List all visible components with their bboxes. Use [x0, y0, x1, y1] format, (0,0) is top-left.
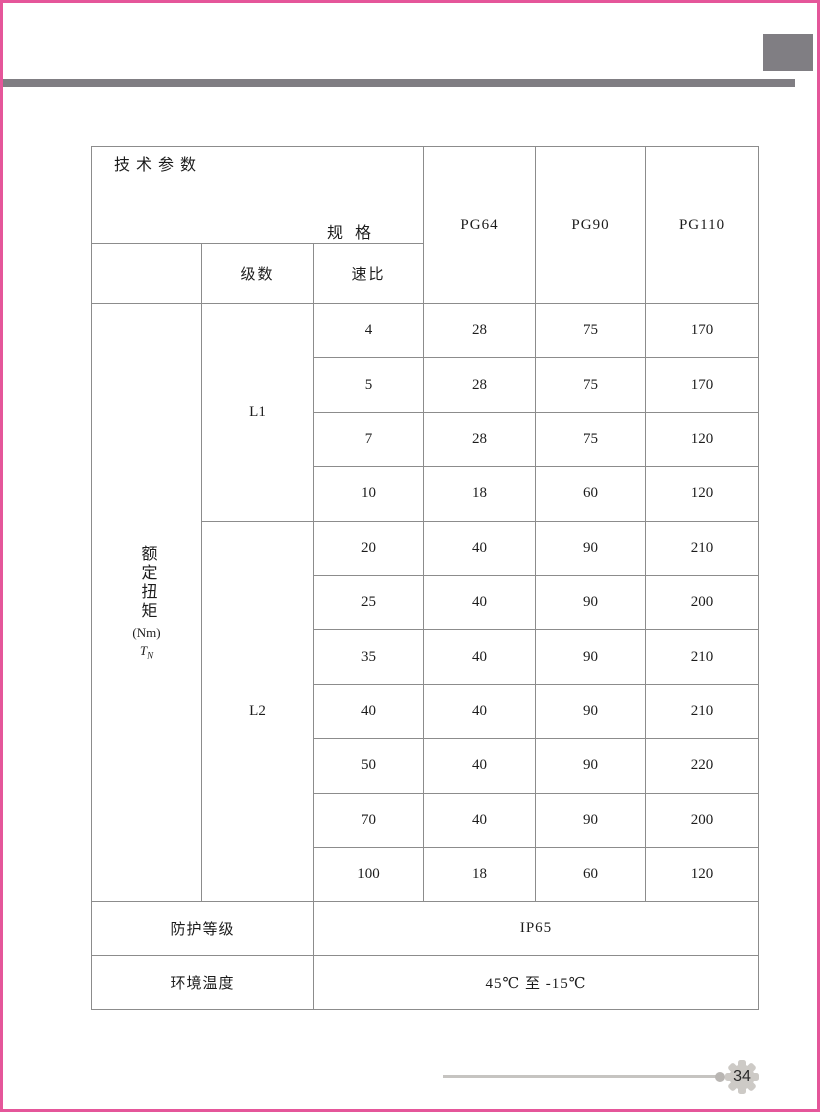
top-accent-square	[763, 34, 813, 71]
ratio-cell: 7	[314, 412, 424, 466]
value-cell: 170	[646, 358, 759, 412]
value-cell: 90	[536, 521, 646, 575]
value-cell: 170	[646, 304, 759, 358]
value-cell: 90	[536, 739, 646, 793]
torque-label-cell: 额定扭矩 (Nm) TN	[92, 304, 202, 902]
footer-rule	[443, 1075, 721, 1078]
value-cell: 90	[536, 575, 646, 629]
value-cell: 90	[536, 630, 646, 684]
ratio-header: 速比	[314, 244, 424, 304]
value-cell: 28	[424, 412, 536, 466]
torque-symbol: TN	[140, 643, 153, 661]
group-label-l2: L2	[202, 521, 314, 902]
value-cell: 120	[646, 467, 759, 521]
params-label: 技术参数	[114, 151, 202, 175]
value-cell: 75	[536, 358, 646, 412]
column-header-pg110: PG110	[646, 147, 759, 304]
footer-dot	[715, 1072, 725, 1082]
torque-unit: (Nm)	[132, 625, 160, 641]
ratio-cell: 4	[314, 304, 424, 358]
corner-header-cell: 规 格 技术参数	[92, 147, 424, 244]
value-cell: 40	[424, 684, 536, 738]
value-cell: 18	[424, 847, 536, 901]
protection-row: 防护等级 IP65	[92, 902, 759, 956]
page-number: 34	[725, 1060, 759, 1094]
value-cell: 200	[646, 793, 759, 847]
torque-name: 额定扭矩	[139, 545, 155, 621]
value-cell: 60	[536, 467, 646, 521]
spec-label: 规 格	[327, 219, 375, 243]
protection-value: IP65	[314, 902, 759, 956]
page-number-badge: 34	[725, 1060, 759, 1094]
value-cell: 210	[646, 630, 759, 684]
value-cell: 200	[646, 575, 759, 629]
ratio-cell: 20	[314, 521, 424, 575]
temperature-label: 环境温度	[92, 956, 314, 1010]
blank-header-cell	[92, 244, 202, 304]
value-cell: 40	[424, 575, 536, 629]
protection-label: 防护等级	[92, 902, 314, 956]
ratio-cell: 40	[314, 684, 424, 738]
value-cell: 75	[536, 412, 646, 466]
ratio-cell: 70	[314, 793, 424, 847]
value-cell: 120	[646, 847, 759, 901]
value-cell: 40	[424, 630, 536, 684]
value-cell: 75	[536, 304, 646, 358]
ratio-cell: 5	[314, 358, 424, 412]
ratio-cell: 35	[314, 630, 424, 684]
group-label-l1: L1	[202, 304, 314, 522]
catalog-page: 规 格 技术参数 PG64 PG90 PG110 级数 速比 额定扭矩	[0, 0, 820, 1112]
value-cell: 90	[536, 793, 646, 847]
value-cell: 40	[424, 739, 536, 793]
table-row: 额定扭矩 (Nm) TN L1 4 28 75 170	[92, 304, 759, 358]
temperature-row: 环境温度 45℃ 至 -15℃	[92, 956, 759, 1010]
value-cell: 40	[424, 521, 536, 575]
value-cell: 210	[646, 521, 759, 575]
spec-table: 规 格 技术参数 PG64 PG90 PG110 级数 速比 额定扭矩	[91, 146, 759, 1010]
temperature-value: 45℃ 至 -15℃	[314, 956, 759, 1010]
ratio-cell: 100	[314, 847, 424, 901]
column-header-pg90: PG90	[536, 147, 646, 304]
value-cell: 28	[424, 358, 536, 412]
stages-header: 级数	[202, 244, 314, 304]
value-cell: 220	[646, 739, 759, 793]
value-cell: 60	[536, 847, 646, 901]
value-cell: 210	[646, 684, 759, 738]
value-cell: 18	[424, 467, 536, 521]
top-accent-bar	[3, 79, 795, 87]
ratio-cell: 25	[314, 575, 424, 629]
value-cell: 28	[424, 304, 536, 358]
value-cell: 40	[424, 793, 536, 847]
column-header-pg64: PG64	[424, 147, 536, 304]
ratio-cell: 10	[314, 467, 424, 521]
ratio-cell: 50	[314, 739, 424, 793]
value-cell: 90	[536, 684, 646, 738]
value-cell: 120	[646, 412, 759, 466]
